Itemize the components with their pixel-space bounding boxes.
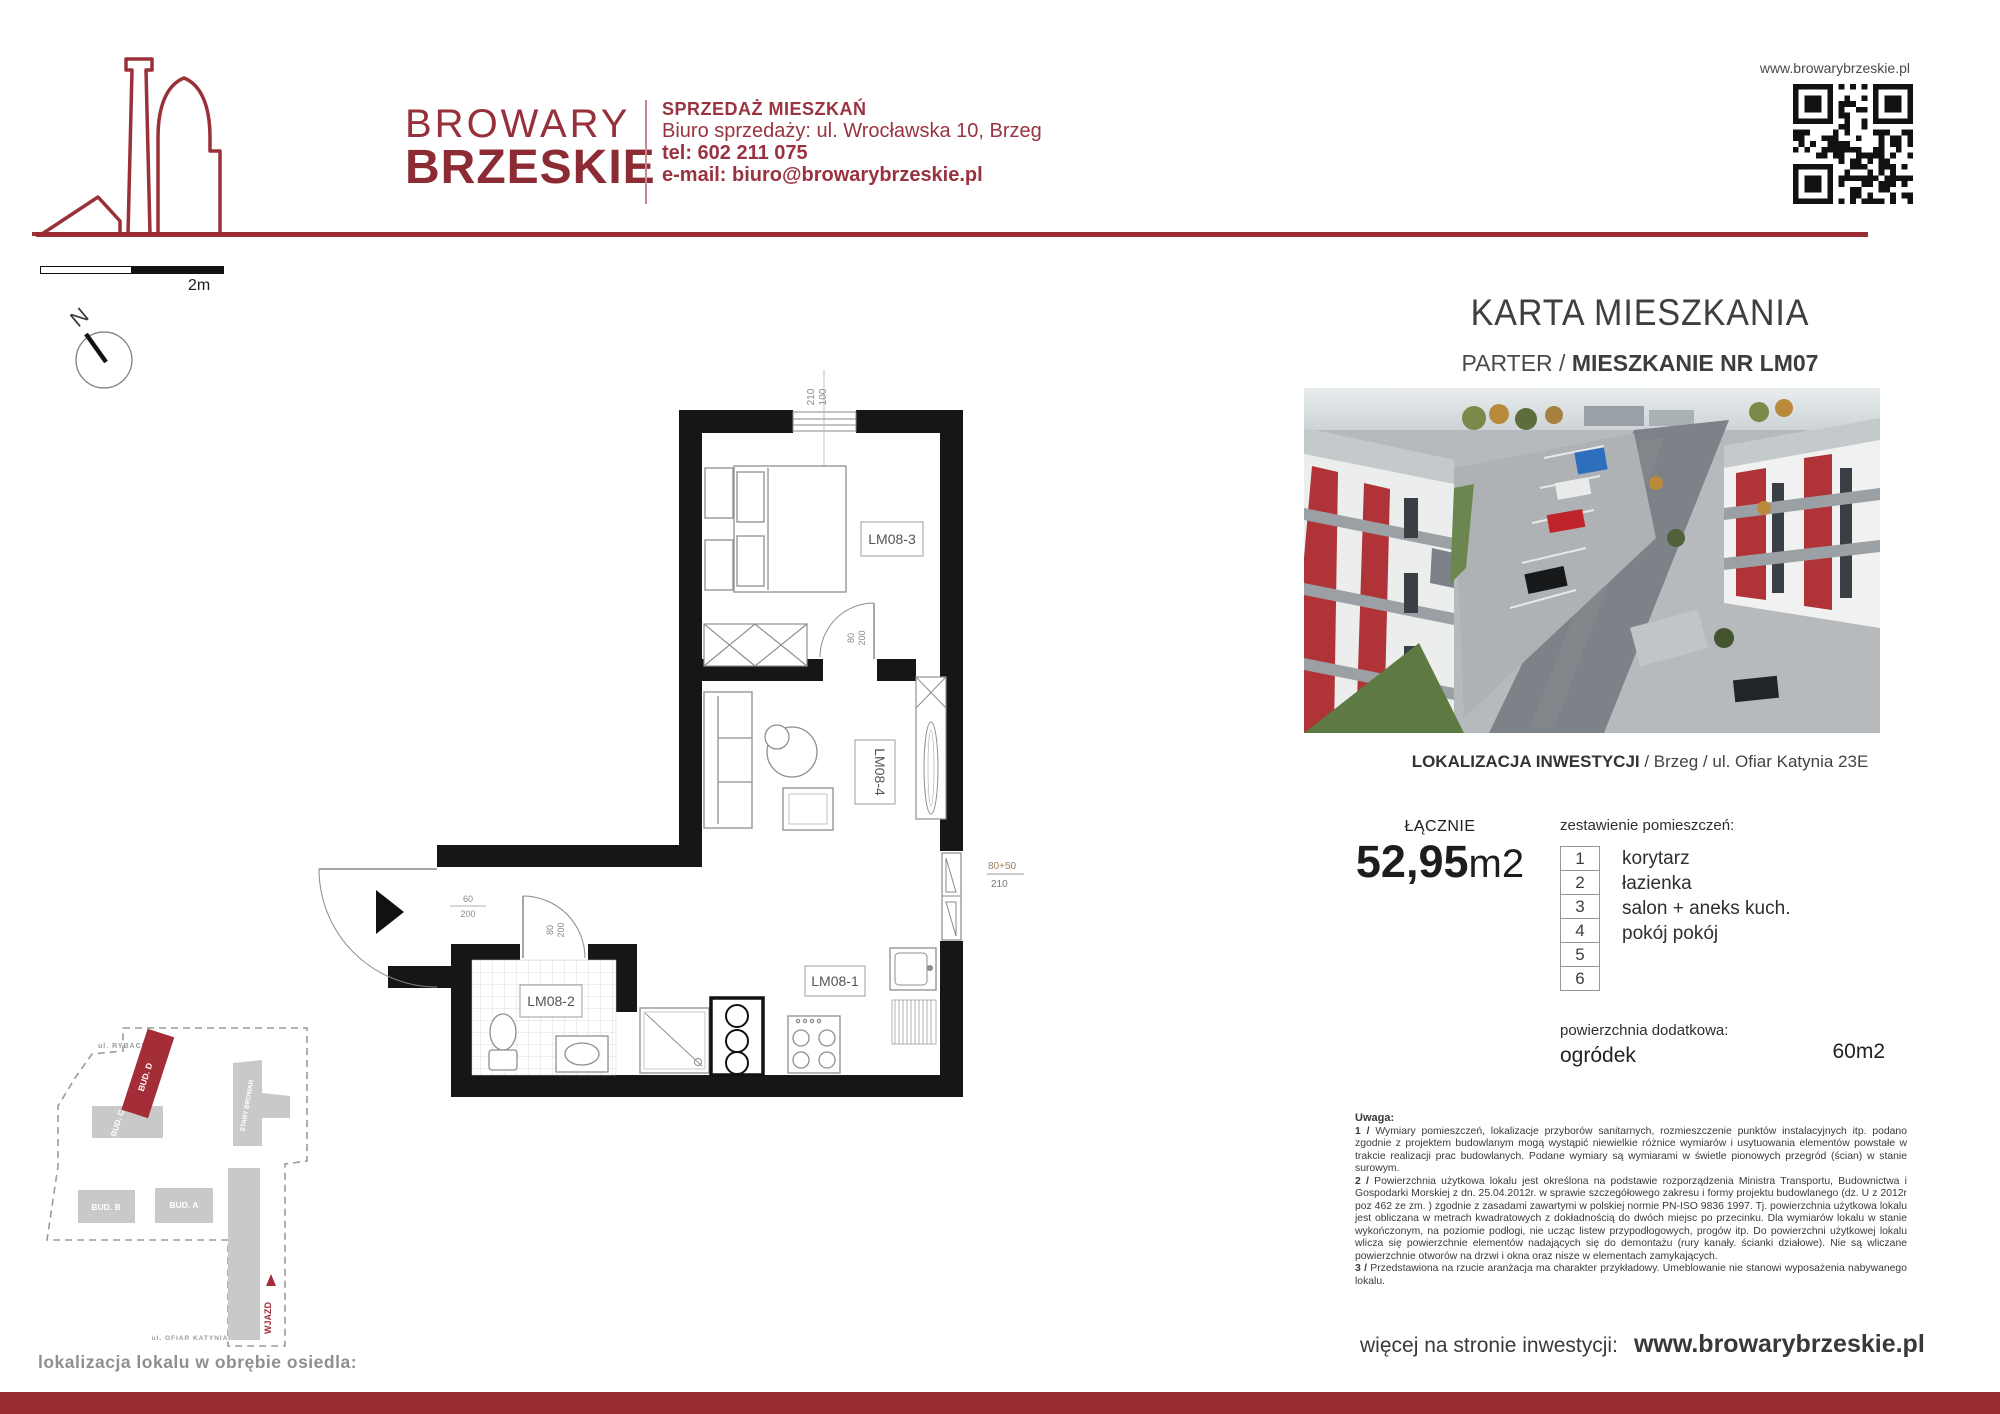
notes-heading: Uwaga:: [1355, 1112, 1907, 1125]
room-row-name: [1622, 946, 1790, 971]
room-label-bathroom: LM08-2: [527, 993, 575, 1009]
sales-office-address: Biuro sprzedaży: ul. Wrocławska 10, Brze…: [662, 120, 1042, 142]
total-area-unit: m2: [1469, 842, 1525, 886]
additional-area-name: ogródek: [1560, 1044, 1636, 1068]
window-dimension: 210 100: [806, 388, 829, 405]
unit-number: MIESZKANIE NR LM07: [1572, 350, 1819, 376]
kitchen-unit: [711, 998, 763, 1075]
unit-subtitle: PARTER / MIESZKANIE NR LM07: [1340, 350, 1940, 377]
room-label-kitchen: LM08-1: [811, 973, 859, 989]
note-item: 1 / Wymiary pomieszczeń, lokalizacje prz…: [1355, 1126, 1907, 1176]
svg-text:80: 80: [846, 633, 856, 643]
legal-notes: Uwaga: 1 / Wymiary pomieszczeń, lokaliza…: [1355, 1112, 1907, 1288]
contact-block: SPRZEDAŻ MIESZKAŃ Biuro sprzedaży: ul. W…: [662, 98, 1042, 186]
additional-area-value: 60m2: [1790, 1040, 1885, 1064]
bathroom-sink: [556, 1036, 608, 1072]
room-row-name: korytarz: [1622, 846, 1790, 871]
rooms-name-column: korytarz łazienka salon + aneks kuch. po…: [1622, 846, 1790, 996]
footer-line: więcej na stronie inwestycji: www.browar…: [1360, 1330, 1925, 1359]
header-rule: [36, 232, 1868, 237]
north-compass: N: [56, 298, 156, 403]
room-row-name: [1622, 971, 1790, 996]
page-title: KARTA MIESZKANIA: [1401, 292, 1879, 334]
stove: [788, 1016, 840, 1073]
room-row-name: łazienka: [1622, 871, 1790, 896]
compass-needle: [86, 334, 106, 362]
brand-name-line1: BROWARY: [405, 104, 656, 144]
site-boundary: [47, 1028, 307, 1346]
location-label: LOKALIZACJA INWESTYCJI: [1412, 752, 1640, 771]
bathroom-door-dimension: 80 200: [545, 922, 566, 937]
bedroom-door-dimension: 80 200: [846, 630, 867, 645]
photo-right-building: [1724, 418, 1880, 628]
total-area-label: ŁĄCZNIE: [1345, 818, 1535, 836]
building-b-label: BUD. B: [91, 1202, 120, 1212]
additional-area-heading: powierzchnia dodatkowa:: [1560, 1022, 1728, 1039]
room-row-number: 6: [1560, 966, 1600, 991]
room-row-number: 5: [1560, 942, 1600, 967]
bottom-accent-bar: [0, 1392, 2000, 1414]
location-value: / Brzeg / ul. Ofiar Katynia 23E: [1640, 752, 1869, 771]
rooms-number-column: 1 2 3 4 5 6: [1560, 847, 1600, 991]
compass-north-label: N: [65, 302, 93, 331]
balcony-door: [942, 853, 961, 940]
wardrobe-bedroom: [704, 624, 807, 666]
wardrobe-living: [916, 677, 946, 819]
svg-text:200: 200: [556, 922, 566, 937]
scale-bar-white-segment: [40, 266, 132, 274]
room-row-number: 3: [1560, 894, 1600, 919]
brand-name: BROWARY BRZESKIE: [405, 104, 656, 192]
footer-website: www.browarybrzeskie.pl: [1634, 1330, 1925, 1359]
room-row-number: 1: [1560, 846, 1600, 871]
svg-text:80: 80: [545, 925, 555, 935]
site-plan: ul. RYBACKA BUD. D BUD. C BUD. B BUD. A …: [30, 1018, 365, 1373]
bed: [705, 466, 846, 592]
svg-text:60: 60: [463, 894, 473, 904]
room-label-bedroom: LM08-3: [868, 531, 916, 547]
room-row-name: salon + aneks kuch.: [1622, 896, 1790, 921]
window-top: [793, 370, 856, 478]
room-row-number: 2: [1560, 870, 1600, 895]
room-label-living: LM08-4: [872, 748, 888, 796]
apartment-card-page: BROWARY BRZESKIE SPRZEDAŻ MIESZKAŃ Biuro…: [0, 0, 2000, 1414]
sofa: [704, 692, 752, 828]
note-item: 3 / Przedstawiona na rzucie aranżacja ma…: [1355, 1263, 1907, 1288]
svg-text:80+50: 80+50: [988, 861, 1017, 872]
entrance-arrow-icon: [376, 890, 404, 934]
qr-code: [1793, 84, 1913, 204]
scale-bar: [40, 266, 224, 274]
balcony-dimension: 80+50 210: [987, 861, 1024, 890]
entry-door-dimension: 60 200: [450, 894, 486, 919]
footer-more-label: więcej na stronie inwestycji:: [1360, 1334, 1618, 1358]
building-a-label: BUD. A: [170, 1200, 199, 1210]
note-item: 2 / Powierzchnia użytkowa lokalu jest ok…: [1355, 1176, 1907, 1264]
svg-text:100: 100: [818, 388, 829, 405]
total-area: 52,95m2: [1345, 836, 1535, 888]
svg-text:210: 210: [806, 388, 817, 405]
floor-plan: 210 100 80+50 210 80 200: [290, 370, 1035, 1150]
svg-text:210: 210: [991, 879, 1008, 890]
sales-email: e-mail: biuro@browarybrzeskie.pl: [662, 164, 1042, 186]
sales-phone: tel: 602 211 075: [662, 142, 1042, 164]
total-area-value: 52,95: [1356, 836, 1469, 887]
svg-text:200: 200: [857, 630, 867, 645]
street-label-bottom: ul. OFIAR KATYNIA: [152, 1335, 229, 1342]
floor-label: PARTER: [1462, 350, 1553, 376]
kitchen-sink: [890, 948, 936, 990]
radiator: [892, 1000, 936, 1044]
entry-arrow-icon: [266, 1274, 276, 1286]
scale-bar-black-segment: [132, 266, 224, 274]
entry-label: WJAZD: [263, 1302, 273, 1334]
website-url-top: www.browarybrzeskie.pl: [1700, 60, 1910, 76]
development-aerial-photo: [1304, 388, 1880, 733]
shower: [640, 1008, 709, 1073]
rooms-heading: zestawienie pomieszczeń:: [1560, 817, 1734, 834]
svg-text:200: 200: [460, 909, 475, 919]
scale-bar-label: 2m: [188, 277, 210, 295]
location-line: LOKALIZACJA INWESTYCJI / Brzeg / ul. Ofi…: [1330, 752, 1950, 772]
room-row-number: 4: [1560, 918, 1600, 943]
site-plan-caption: lokalizacja lokalu w obrębie osiedla:: [38, 1352, 357, 1373]
brand-skyline-logo-icon: [30, 38, 330, 238]
chair: [783, 788, 833, 830]
toilet: [489, 1014, 517, 1070]
room-row-name: pokój pokój: [1622, 921, 1790, 946]
sales-tagline: SPRZEDAŻ MIESZKAŃ: [662, 98, 1042, 120]
round-table: [765, 725, 817, 777]
header-divider: [645, 100, 647, 204]
brand-name-line2: BRZESKIE: [405, 144, 656, 192]
